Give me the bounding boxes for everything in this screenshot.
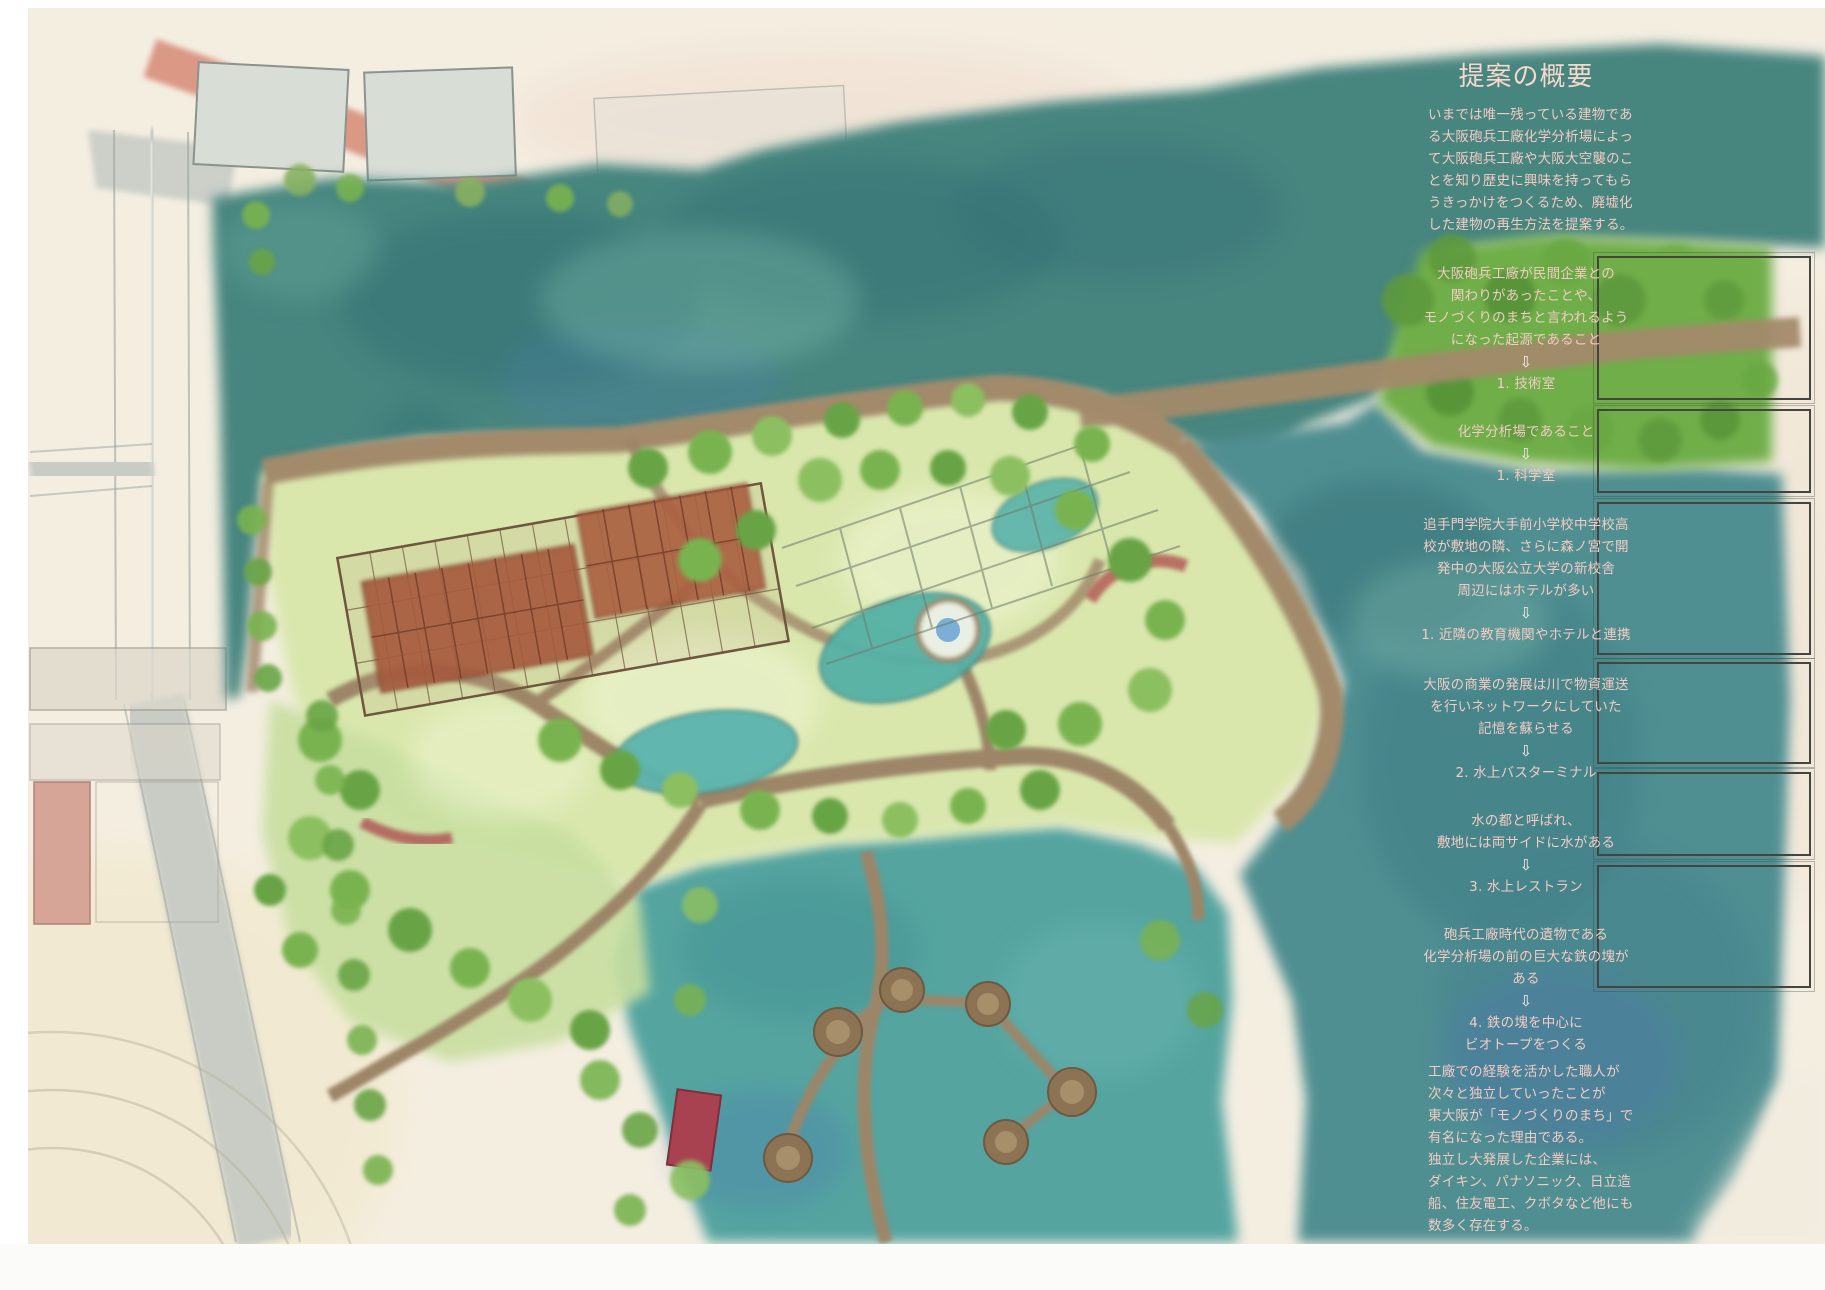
- callout-frame-3: [1597, 502, 1811, 655]
- callout-frame-4: [1597, 662, 1811, 764]
- callout-frame-5: [1597, 772, 1811, 856]
- red-hut: [667, 1089, 721, 1170]
- watercolor-scene: [0, 0, 1825, 1290]
- callout-frame-2: [1597, 409, 1811, 493]
- callout-frame-6: [1597, 865, 1811, 988]
- watercolor-site-plan: 提案の概要 いまでは唯一残っている建物である大阪砲兵工廠化学分析場によって大阪砲…: [0, 0, 1825, 1290]
- callout-frame-1: [1597, 256, 1811, 400]
